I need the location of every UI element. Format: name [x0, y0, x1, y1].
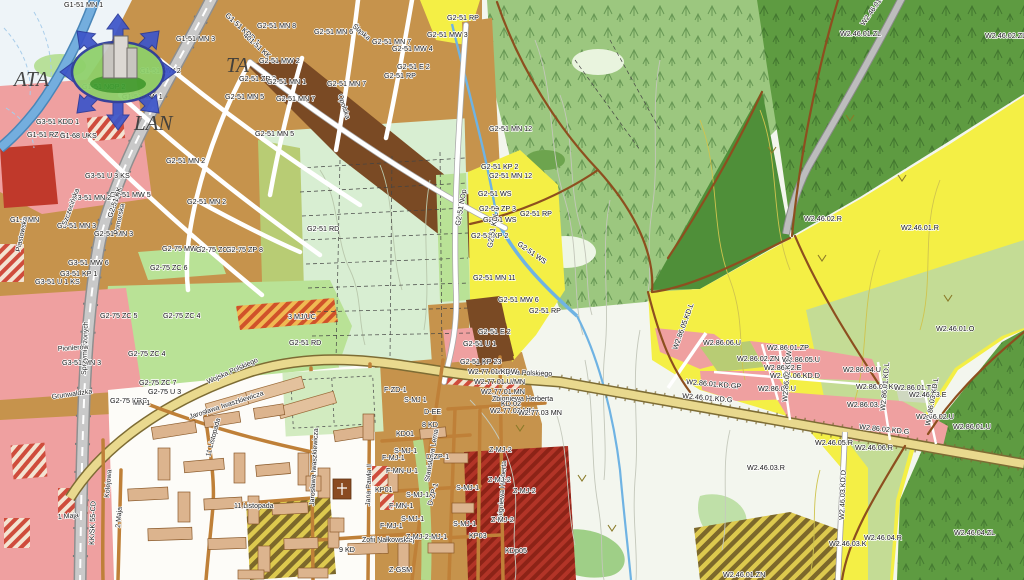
zone-label: G2-51 MW 4	[392, 44, 433, 53]
zone-label: S-MJ 1	[404, 395, 427, 404]
zone-label: G2-75 ZC 4	[128, 349, 166, 358]
zone-label: W2.46.01.R	[901, 223, 939, 232]
zone-label: G2-51 WS	[483, 215, 517, 224]
zone-label: G2-51 KP 2	[481, 162, 518, 171]
map-viewport: G1-51 MN 1G1-51 MN 3G1-51 MW 2G1-51 NOP …	[0, 0, 1024, 580]
forest-clearing	[572, 49, 624, 75]
zone-label: W2.46.03.K	[829, 539, 867, 548]
zone-label: G2-51 MN 5	[225, 92, 264, 101]
zone-label: G2-75 ZC 7	[139, 378, 177, 387]
zone-label: G1-51 MN 3	[176, 34, 215, 43]
zone-label: 9 KD	[339, 545, 355, 554]
zone-label: G2-75 ZC 4	[163, 311, 201, 320]
zone-label: Z-MJ-2-MJ-1	[406, 532, 447, 541]
zone-label: G2-75 ZP 8	[226, 245, 263, 254]
zone-label: KDp05	[505, 546, 527, 555]
zone-label: W2.46.02.ZL	[985, 31, 1024, 40]
zone-label: W2.86.04.U	[843, 365, 881, 374]
zone-label: G2-51 MN 1	[267, 77, 306, 86]
zone-label: G2-51 MN 12	[489, 171, 532, 180]
zone-label: KP03	[469, 531, 487, 540]
zone-label: G2-51 E 2	[397, 62, 430, 71]
zone-label: G2-51 MN 2	[187, 197, 226, 206]
zone-label: MN 1	[133, 398, 150, 407]
church-building	[333, 479, 351, 499]
zone-label: G2-51 MW 6	[498, 295, 539, 304]
zone-services-pink2	[0, 288, 142, 400]
zone-label: W2.86.02.ZN	[737, 354, 779, 363]
zone-label: W2.46.04.R	[864, 533, 902, 542]
zone-label: W2.86.04.KD	[856, 382, 899, 391]
zone-label: G2-51 RD	[307, 224, 339, 233]
logo-text-right: TA	[226, 53, 249, 77]
zone-label: F-ZD-1	[384, 385, 407, 394]
zone-label: W2.46.03.KD.D	[837, 470, 848, 520]
zone-label: S-MJ-1	[401, 514, 424, 523]
zone-label: W2.46.05.R	[815, 438, 853, 447]
zone-label: S-MJ-1	[406, 490, 429, 499]
zone-label: G2-51 MN 6	[314, 27, 353, 36]
zone-label: G2-51 MN 5	[255, 129, 294, 138]
street-label: 11 Listopada	[234, 503, 274, 510]
zone-label: W2.86.06.U	[703, 338, 741, 347]
zone-label: W2.46.04.ZL	[954, 528, 995, 537]
zone-label: KK/SK 55-CD	[87, 501, 98, 545]
zone-label: G2-51 MN 7	[276, 94, 315, 103]
zone-label: G2-75 U 3	[148, 387, 181, 396]
zone-label: F-MJ-1	[382, 453, 405, 462]
zone-label: G3-51 U 3 KS	[85, 171, 130, 180]
zone-label: W2.46.03.R	[747, 463, 785, 472]
zone-label: 8 KD	[422, 420, 438, 429]
zone-label: KD01	[396, 429, 414, 438]
logo-text-bottom: LAN	[133, 111, 174, 135]
zone-label: G3-51 MW 6	[68, 258, 109, 267]
zone-label: G2-51 RP	[529, 306, 561, 315]
zone-label: G2-51 E 2	[478, 327, 511, 336]
zone-label: Z-GSM	[389, 565, 412, 574]
zone-label: W2.46.01.O	[936, 324, 975, 333]
zone-label: G2-75 ZC 6	[150, 263, 188, 272]
zone-label: D-ZP-1	[426, 452, 449, 461]
zone-label: D-EE	[424, 407, 441, 416]
zone-label: 3 MJ/UC	[288, 312, 316, 321]
zone-label: G1-68 UKS	[60, 131, 97, 140]
zone-label: G2-51 WS	[478, 189, 512, 198]
zone-label: G2-51 RP	[520, 209, 552, 218]
zone-label: G2-51 MN 2	[166, 156, 205, 165]
zone-label: G1-51 RZ 2	[27, 130, 65, 139]
zone-label: F-MN-1	[389, 501, 413, 510]
zone-label: Z-MJ-2	[491, 515, 514, 524]
map-canvas[interactable]: G1-51 MN 1G1-51 MN 3G1-51 MW 2G1-51 NOP …	[0, 0, 1024, 580]
zone-label: Z-MJ-2	[513, 486, 536, 495]
zone-label: G2-51 MN 11	[473, 273, 516, 282]
zone-label: Z-MJ-2	[488, 475, 511, 484]
zone-label: G3-51 U 1 KS	[35, 277, 80, 286]
street-label: Jana Pawła II	[365, 464, 373, 506]
hatch-red	[11, 443, 48, 480]
zone-label: G2-51 RD	[289, 338, 321, 347]
zone-label: W2.77.01.KDW	[468, 367, 518, 376]
zone-label: G2-51 KP 23	[460, 357, 501, 366]
zone-label: G2-51 MW 2	[259, 56, 300, 65]
zone-label: W2.46.01.ZN	[723, 570, 765, 579]
zone-label: F-MN-U-1	[386, 466, 418, 475]
zone-label: G2-51 MN 12	[489, 124, 532, 133]
zone-label: KP01	[375, 485, 393, 494]
zone-label: W2.46.06.R	[855, 443, 893, 452]
zone-label: S-MJ-1	[456, 483, 479, 492]
zone-label: W2.77.01.MN	[481, 387, 525, 396]
zone-label: G2-51 RP	[384, 71, 416, 80]
zone-label: W2.77.01.U/MN	[474, 377, 525, 386]
zone-label: Z-MJ-2	[489, 445, 512, 454]
zone-label: W2.46.02.R	[804, 214, 842, 223]
zone-label: G2-75 ZC 5	[100, 311, 138, 320]
zone-services-red	[0, 144, 58, 208]
zone-label: G2-51 MW 3	[427, 30, 468, 39]
zone-label: W2.86.06.KD.D	[770, 371, 820, 380]
zone-label: W2.86.02.U	[916, 412, 954, 421]
zone-label: G2-51 MN 7	[327, 79, 366, 88]
zone-label: G2-51 MN 8	[257, 21, 296, 30]
hatch-red	[4, 518, 30, 548]
zone-label: G2-51 RP	[447, 13, 479, 22]
zone-label: W2.86.01.U	[953, 422, 991, 431]
zone-label: W2.46.01.ZL	[840, 29, 881, 38]
zone-label: G3-51 KDD 1	[36, 117, 79, 126]
zone-label: F-MJ-1	[380, 521, 403, 530]
zone-label: G2-51 U 1	[463, 339, 496, 348]
zone-label: S-MJ-1	[453, 519, 476, 528]
zone-label: W2.77.03 MN	[518, 408, 562, 417]
zone-label: G1-51 MN 1	[64, 0, 103, 9]
logo-text-left: ATA	[12, 67, 49, 91]
